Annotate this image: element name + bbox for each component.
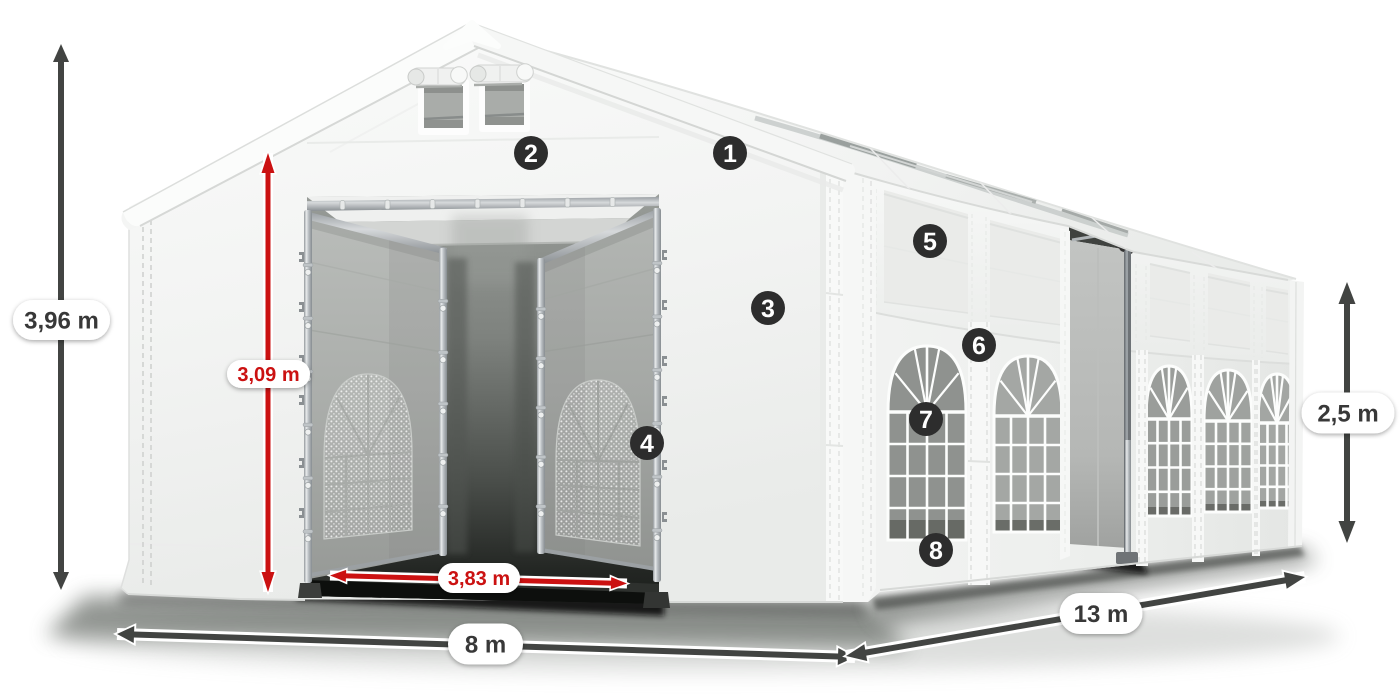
svg-text:7: 7 bbox=[919, 406, 933, 434]
svg-text:1: 1 bbox=[723, 140, 737, 168]
svg-text:3: 3 bbox=[761, 295, 775, 323]
svg-text:5: 5 bbox=[923, 228, 937, 256]
svg-text:3,09 m: 3,09 m bbox=[237, 364, 299, 386]
svg-text:2,5 m: 2,5 m bbox=[1317, 401, 1378, 428]
svg-text:3,83 m: 3,83 m bbox=[448, 568, 510, 590]
svg-text:8: 8 bbox=[929, 537, 943, 565]
svg-text:13 m: 13 m bbox=[1074, 601, 1129, 628]
svg-text:3,96 m: 3,96 m bbox=[24, 308, 99, 335]
svg-text:6: 6 bbox=[972, 332, 986, 360]
svg-text:4: 4 bbox=[640, 430, 654, 458]
svg-text:2: 2 bbox=[524, 140, 538, 168]
svg-text:8 m: 8 m bbox=[465, 632, 506, 659]
